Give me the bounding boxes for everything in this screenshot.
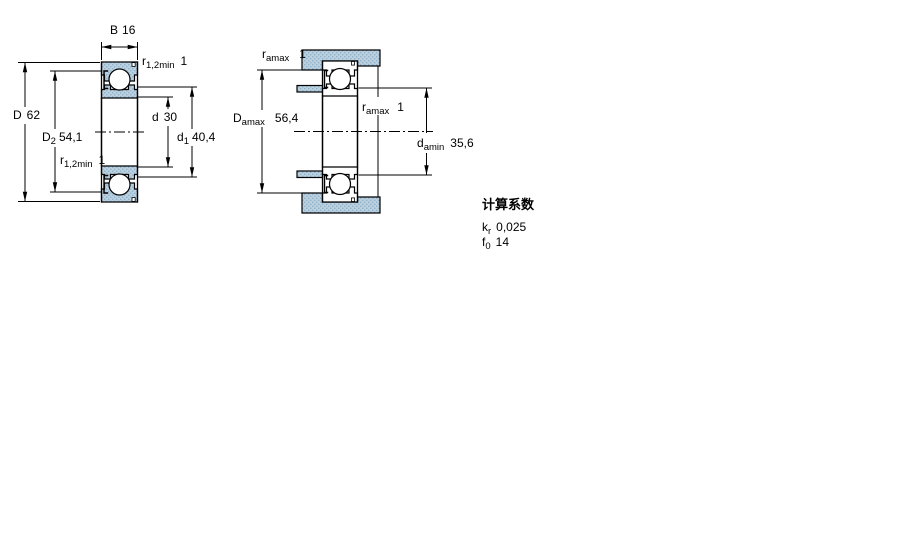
label-dim-D2: D254,1	[42, 130, 83, 147]
dimension-B: B16	[102, 23, 138, 60]
bearing-section-upper	[102, 62, 138, 166]
dimension-D: D62	[13, 63, 100, 202]
extension-lines-B	[102, 42, 138, 60]
ball	[109, 69, 130, 90]
label-r12min-top: r1,2min1	[142, 54, 188, 71]
label-dim-d1: d140,4	[177, 130, 216, 147]
left-view-bearing-section: B16 D62 D254,1 d30 d140,4	[13, 23, 216, 202]
snap-ring-groove-right	[352, 62, 355, 66]
right-view-mounting-section: Damax56,4 damin35,6 ramax1 ramax1	[233, 47, 474, 213]
label-r12min-bottom: r1,2min1	[60, 153, 106, 170]
shaft-shoulder-upper	[297, 86, 323, 93]
calc-factors-title: 计算系数	[482, 197, 535, 212]
extension-lines-d1	[138, 87, 198, 177]
technical-drawing-page: B16 D62 D254,1 d30 d140,4	[0, 0, 900, 560]
label-dim-da: damin35,6	[417, 136, 474, 153]
calc-factor-f0: f014	[482, 235, 509, 252]
bearing-dimension-drawing: B16 D62 D254,1 d30 d140,4	[0, 0, 900, 560]
bearing-section-lower	[102, 98, 138, 202]
label-dim-D: D62	[13, 108, 40, 122]
snap-ring-groove	[132, 63, 135, 67]
label-dim-B: B16	[110, 23, 136, 37]
bearing-section-upper-right	[323, 61, 358, 167]
dimension-D2: D254,1	[42, 71, 101, 192]
label-ramax-mid: ramax1	[362, 100, 404, 117]
bearing-section-lower-right	[323, 96, 358, 202]
dimension-da: damin35,6	[417, 88, 474, 175]
label-ramax-top: ramax1	[262, 47, 306, 64]
calculation-factors: 计算系数 kr0,025 f014	[482, 197, 535, 252]
ball-right	[330, 69, 351, 90]
label-dim-Da: Damax56,4	[233, 111, 299, 128]
label-dim-d: d30	[152, 110, 177, 124]
dimension-d1: d140,4	[138, 87, 216, 177]
